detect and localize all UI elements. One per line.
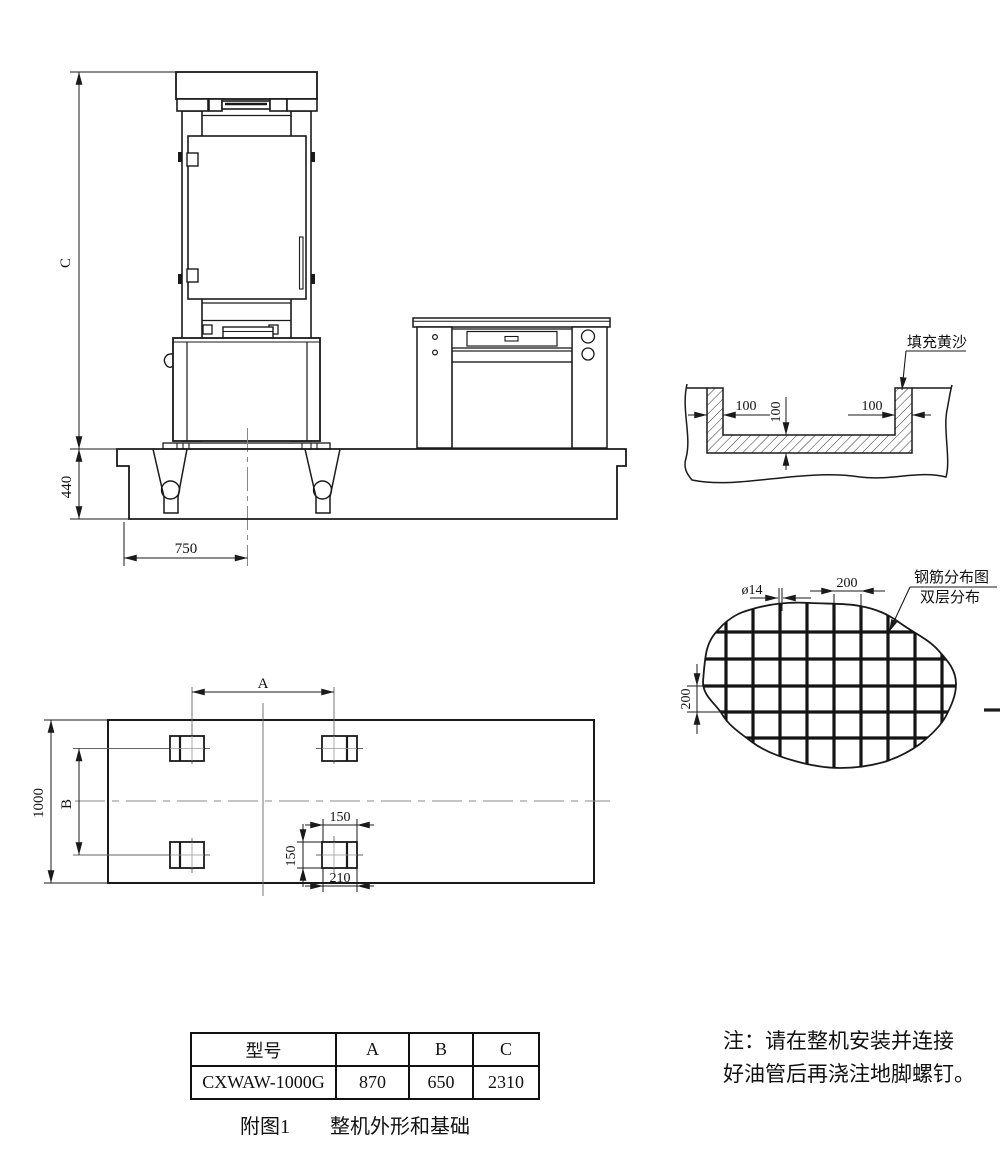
figure-caption: 附图1 整机外形和基础 bbox=[240, 1110, 470, 1139]
anchor-bolt-hole-right bbox=[314, 481, 332, 499]
spec-header-a: A bbox=[336, 1033, 409, 1066]
door-hinge-top bbox=[187, 153, 198, 166]
dim-text-1000: 1000 bbox=[31, 788, 47, 818]
frame-nub-left-bottom bbox=[178, 274, 182, 284]
figure-title: 整机外形和基础 bbox=[330, 1110, 470, 1139]
sand-channel bbox=[707, 388, 912, 453]
spec-value-c: 2310 bbox=[473, 1066, 539, 1099]
machine-base bbox=[173, 338, 320, 441]
front-view-machine bbox=[163, 72, 330, 449]
note-line-1: 注：请在整机安装并连接 bbox=[723, 1025, 975, 1058]
dim-text-150w: 150 bbox=[330, 810, 351, 825]
crosshead-flange-small-right bbox=[270, 99, 287, 111]
dim-text-B: B bbox=[59, 799, 75, 809]
rebar-grid bbox=[695, 595, 965, 775]
console-right-leg bbox=[572, 327, 607, 448]
dim-text-750: 750 bbox=[175, 541, 198, 557]
foundation-outline bbox=[117, 449, 626, 519]
spec-value-model: CXWAW-1000G bbox=[191, 1066, 336, 1099]
rebar-label-line1: 钢筋分布图 bbox=[914, 569, 989, 586]
figure-number: 附图1 bbox=[240, 1110, 290, 1139]
front-view-console bbox=[413, 318, 610, 448]
dim-text-440: 440 bbox=[59, 476, 75, 499]
crosshead-flange-right bbox=[287, 99, 317, 111]
plan-view bbox=[44, 687, 610, 896]
front-view-foundation bbox=[117, 449, 626, 519]
note-line-2: 好油管后再浇注地脚螺钉。 bbox=[723, 1058, 975, 1091]
console-rail-band bbox=[452, 351, 572, 362]
frame-nub-right-top bbox=[311, 152, 315, 162]
frame-nub-left-top bbox=[178, 152, 182, 162]
dim-text-150h: 150 bbox=[284, 846, 299, 867]
worktable-clamp-left bbox=[203, 325, 212, 334]
drawing-canvas: C 440 750 100 100 100 填充黄沙 bbox=[0, 0, 1000, 1169]
spec-header-model: 型号 bbox=[191, 1033, 336, 1066]
machine-crosshead bbox=[176, 72, 317, 99]
machine-door-panel bbox=[188, 136, 306, 299]
dim-text-100-right: 100 bbox=[862, 399, 883, 414]
sand-label-leader bbox=[902, 351, 906, 390]
installation-note: 注：请在整机安装并连接 好油管后再浇注地脚螺钉。 bbox=[723, 1025, 975, 1091]
dim-text-100-floor: 100 bbox=[769, 402, 784, 423]
sand-fill-label: 填充黄沙 bbox=[907, 334, 967, 351]
frame-nub-right-bottom bbox=[311, 274, 315, 284]
base-side-hook bbox=[164, 354, 173, 367]
engineering-drawing-page: C 440 750 100 100 100 填充黄沙 bbox=[0, 0, 1000, 1169]
sand-fill-detail bbox=[685, 351, 966, 483]
crosshead-flange-small-left bbox=[209, 99, 222, 111]
console-tabletop bbox=[413, 318, 610, 327]
rebar-detail bbox=[687, 587, 997, 775]
dim-text-200v: 200 bbox=[679, 689, 694, 710]
spec-table: 型号 A B C CXWAW-1000G 870 650 2310 bbox=[190, 1032, 540, 1100]
spec-header-c: C bbox=[473, 1033, 539, 1066]
rebar-label-leader bbox=[889, 587, 910, 632]
door-hinge-bottom bbox=[187, 269, 198, 282]
anchor-bolt-hole-left bbox=[162, 481, 180, 499]
console-front-panel bbox=[452, 362, 572, 448]
rebar-label-line2: 双层分布 bbox=[920, 589, 980, 606]
spec-table-header-row: 型号 A B C bbox=[191, 1033, 539, 1066]
dim-text-210: 210 bbox=[330, 871, 351, 886]
spec-value-b: 650 bbox=[409, 1066, 473, 1099]
lower-platen bbox=[223, 327, 273, 338]
spec-header-b: B bbox=[409, 1033, 473, 1066]
console-left-leg bbox=[417, 327, 452, 448]
crosshead-flange-left bbox=[177, 99, 208, 111]
spec-value-a: 870 bbox=[336, 1066, 409, 1099]
dim-text-C: C bbox=[58, 258, 74, 268]
dim-text-A: A bbox=[258, 676, 269, 692]
spec-table-data-row: CXWAW-1000G 870 650 2310 bbox=[191, 1066, 539, 1099]
dim-text-100-left: 100 bbox=[736, 399, 757, 414]
dim-text-dia14: ø14 bbox=[742, 583, 763, 598]
dim-text-200h: 200 bbox=[837, 576, 858, 591]
